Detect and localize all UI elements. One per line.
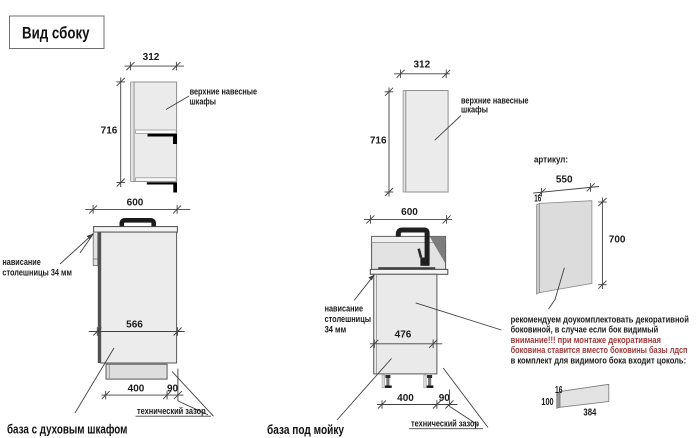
svg-text:400: 400 [397, 393, 414, 404]
svg-text:716: 716 [101, 126, 118, 137]
svg-text:400: 400 [128, 384, 145, 395]
svg-text:700: 700 [609, 235, 626, 246]
svg-text:600: 600 [401, 207, 418, 218]
svg-text:технический зазор: технический зазор [137, 406, 206, 416]
svg-text:Вид сбоку: Вид сбоку [22, 25, 90, 43]
svg-text:600: 600 [127, 198, 144, 209]
svg-text:технический зазор: технический зазор [411, 419, 479, 429]
svg-text:артикул:: артикул: [534, 154, 568, 164]
svg-text:боковиной, в случае если бок в: боковиной, в случае если бок видимый [511, 325, 659, 335]
svg-text:312: 312 [143, 52, 160, 63]
svg-text:16: 16 [534, 194, 541, 205]
svg-text:476: 476 [395, 329, 412, 340]
svg-text:90: 90 [439, 393, 451, 404]
svg-text:столешницы 34 мм: столешницы 34 мм [2, 268, 72, 278]
svg-text:шкафы: шкафы [461, 105, 488, 115]
svg-text:шкафы: шкафы [190, 96, 217, 106]
svg-text:566: 566 [126, 320, 143, 331]
svg-text:384: 384 [583, 407, 596, 418]
svg-text:база под мойку: база под мойку [267, 423, 344, 437]
svg-text:база с духовым шкафом: база с духовым шкафом [7, 423, 127, 437]
svg-text:нависание: нависание [325, 304, 363, 314]
svg-text:100: 100 [541, 397, 554, 408]
svg-text:столешницы: столешницы [325, 314, 372, 324]
svg-text:550: 550 [556, 174, 573, 185]
svg-text:312: 312 [413, 59, 430, 70]
svg-text:716: 716 [370, 136, 387, 147]
svg-text:боковина ставится вместо боков: боковина ставится вместо боковины базы л… [511, 345, 688, 355]
svg-text:34 мм: 34 мм [325, 324, 347, 334]
svg-text:нависание: нависание [2, 257, 40, 267]
svg-text:внимание!!! при монтаже декора: внимание!!! при монтаже декоративная [511, 335, 661, 345]
svg-text:16: 16 [555, 385, 563, 396]
svg-text:верхние навесные: верхние навесные [190, 87, 258, 97]
svg-text:рекомендуем доукомплектовать д: рекомендуем доукомплектовать декоративно… [511, 314, 689, 324]
svg-text:в комплект для видимого бока в: в комплект для видимого бока входит цоко… [511, 355, 686, 365]
